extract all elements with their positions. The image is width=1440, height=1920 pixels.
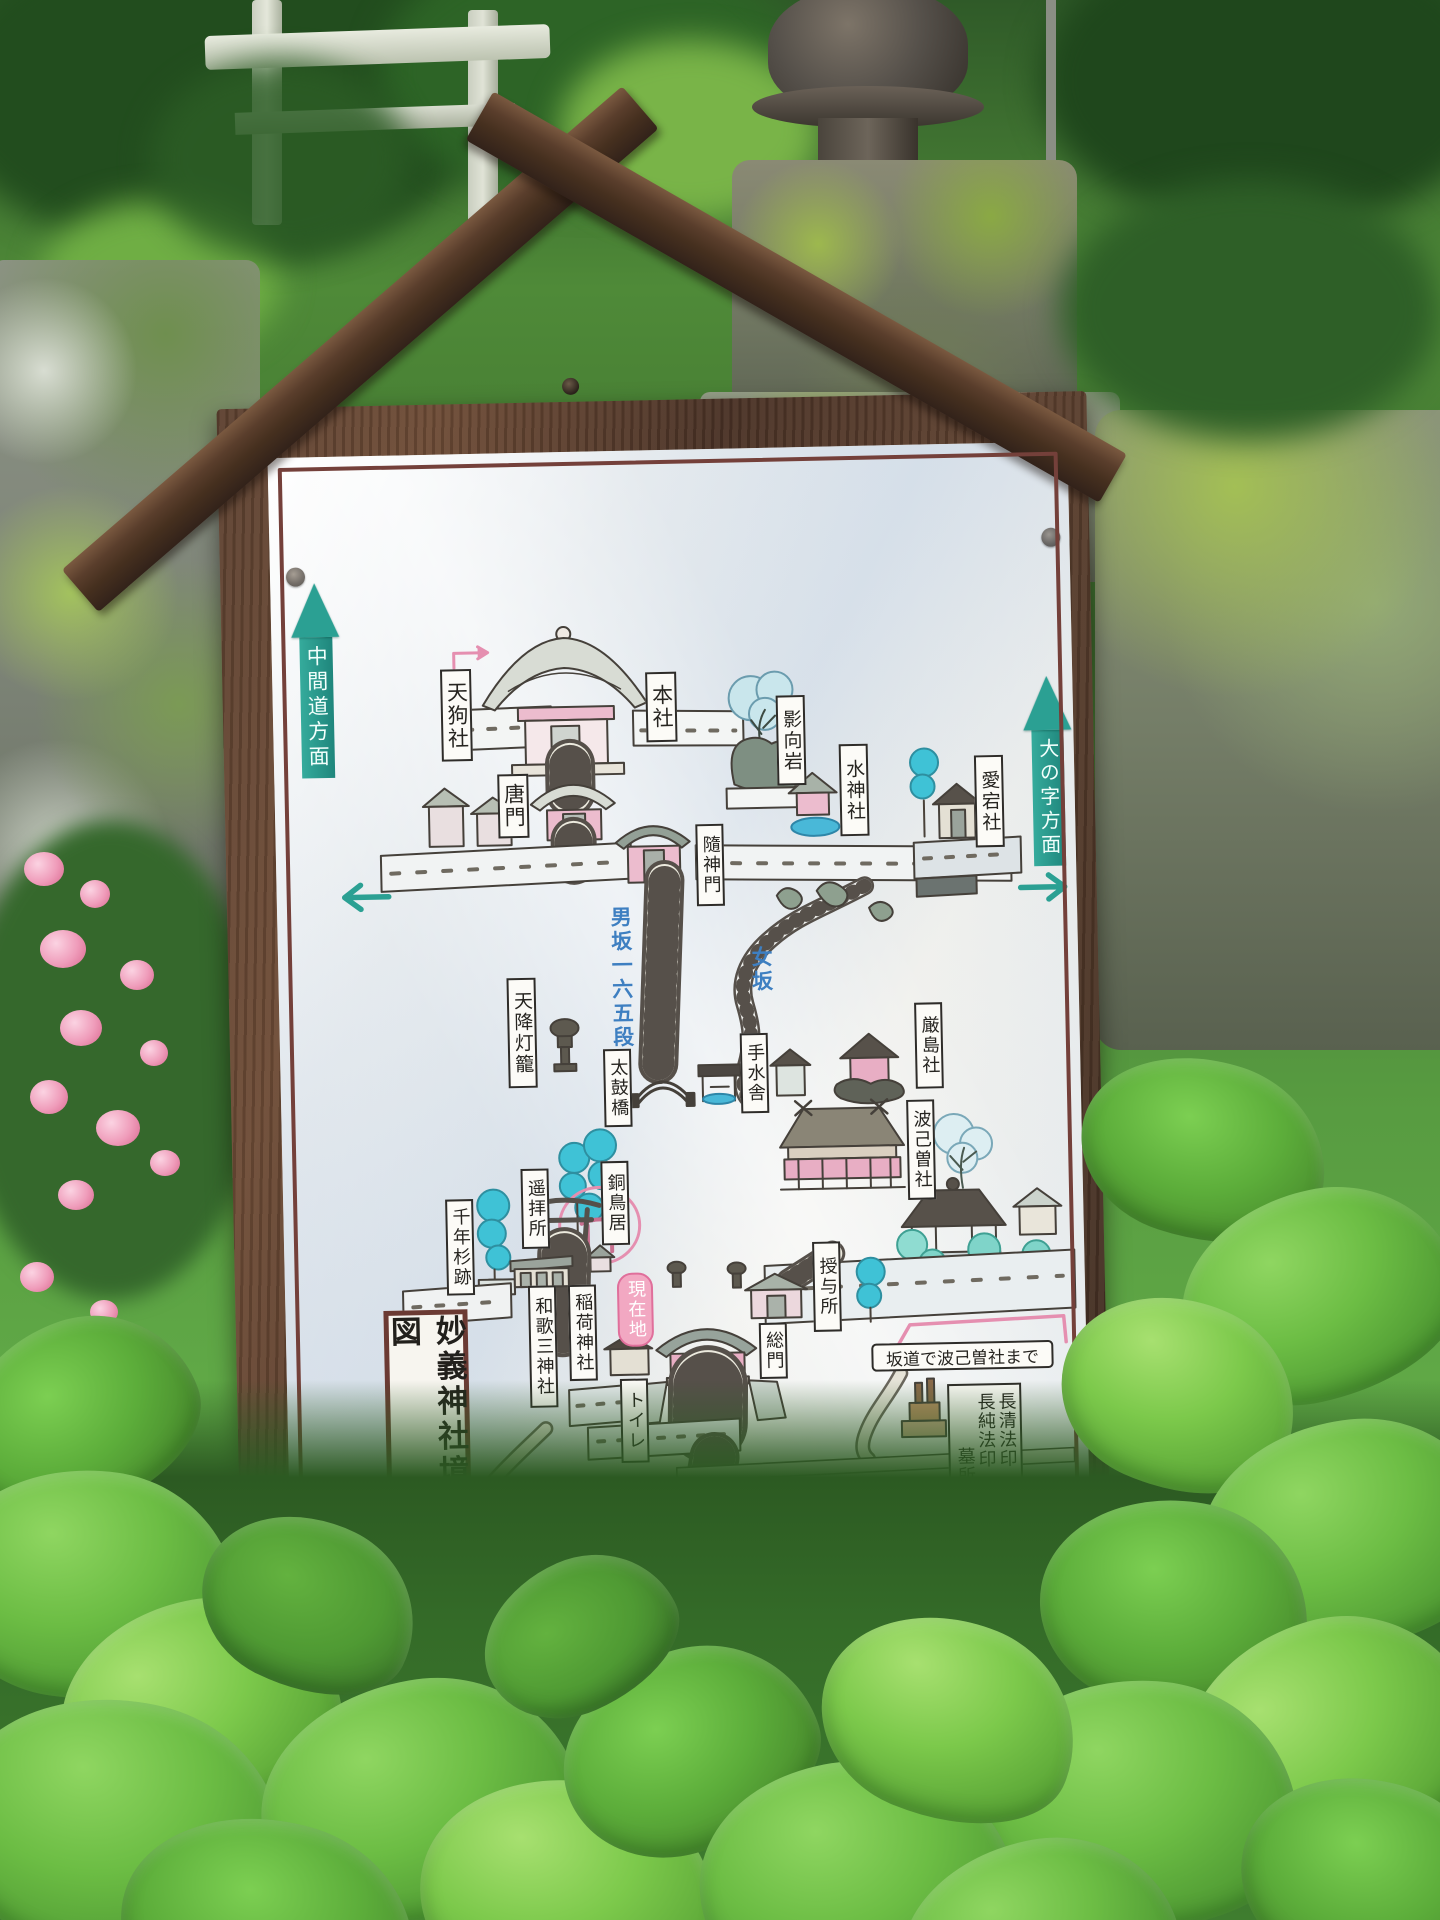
label-honsha: 本社 <box>645 672 677 743</box>
label-taikobashi: 太鼓橋 <box>603 1049 633 1128</box>
direction-banner-left: 中間道方面 <box>290 583 342 779</box>
tenkotoro-lantern <box>550 1019 579 1072</box>
label-hakososha: 波己曽社 <box>906 1099 936 1200</box>
label-atagosha: 愛宕社 <box>974 755 1005 848</box>
label-somon: 総門 <box>759 1323 788 1380</box>
label-inarijinja: 稲荷神社 <box>568 1284 598 1381</box>
route-sakamichi: 坂道で波己曽社まで <box>871 1340 1054 1372</box>
taikobashi-bridge <box>631 1081 694 1106</box>
label-itsukushimasha: 厳島社 <box>914 1002 944 1089</box>
label-tenkotoro: 天降灯籠 <box>506 978 537 1089</box>
label-sennensugiato: 千年杉跡 <box>445 1199 475 1296</box>
pink-route-arrow <box>454 647 488 669</box>
courtyard-lanterns <box>667 1260 746 1289</box>
label-karamon: 唐門 <box>497 774 529 839</box>
label-dotorii: 銅鳥居 <box>600 1161 630 1246</box>
chozu-basin <box>698 1064 741 1104</box>
rowhouse <box>510 1256 573 1287</box>
otokozaka-stairs <box>654 880 668 1064</box>
temizusha-hut <box>770 1049 811 1096</box>
route-onnazaka: 女坂 <box>746 946 777 1007</box>
atagosha-shrine <box>910 747 1022 897</box>
sennensugi-tree <box>477 1189 515 1295</box>
label-temizusha: 手水舎 <box>740 1033 770 1114</box>
label-juyosho: 授与所 <box>812 1241 842 1332</box>
itsukushima-shrine <box>833 1033 904 1104</box>
label-zuishinmon: 隨神門 <box>695 824 725 907</box>
label-suijinsha: 水神社 <box>839 744 870 837</box>
direction-left-label: 中間道方面 <box>299 637 335 779</box>
photo-of-shrine-map-sign: 中間道方面 大の字方面 天狗社 本社 影向岩 水神社 愛宕社 唐門 隨神 <box>0 0 1440 1920</box>
label-yogoiwa: 影向岩 <box>776 695 807 786</box>
gable-bolt <box>562 378 579 395</box>
label-yohaisho: 遥拝所 <box>520 1168 550 1249</box>
label-tengusha: 天狗社 <box>440 669 473 762</box>
hakoso-building <box>779 1099 905 1190</box>
pale-tree <box>933 1113 993 1188</box>
left-arrow-icon <box>334 880 395 915</box>
right-arrow-icon <box>1014 869 1075 904</box>
banner-arrowhead <box>1022 675 1071 730</box>
banner-arrowhead <box>290 583 339 638</box>
route-genzaichi: 現在地 <box>617 1272 655 1347</box>
pavilion-hut <box>1013 1188 1062 1235</box>
direction-banner-right: 大の字方面 <box>1022 675 1074 866</box>
route-otokozaka: 男坂一六五段 <box>605 906 638 1052</box>
direction-right-label: 大の字方面 <box>1031 730 1066 867</box>
